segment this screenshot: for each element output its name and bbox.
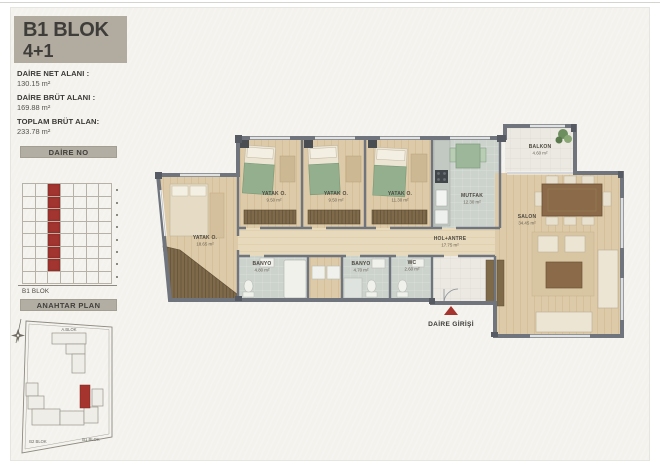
label-salon-name: SALON [518,214,537,220]
bath2-shower [344,278,362,298]
unit-cell [99,259,112,272]
label-wc-area: 2.60 m² [405,267,420,272]
compass-icon [11,319,25,343]
floor-dot [116,276,118,278]
master-bed [170,184,208,236]
stat-toplam-value: 233.78 m² [17,127,129,136]
stat-net-label: DAİRE NET ALANI : [17,69,129,78]
unit-cell-highlighted [48,184,61,197]
bed3-dresser [411,154,427,182]
top-divider [0,2,660,3]
bed3-nightstand [368,140,377,148]
label-master-name: YATAK O. [193,235,218,241]
label-banyo2-area: 4.70 m² [354,268,369,273]
unit-cell [87,222,100,235]
label-banyo1-name: BANYO [252,261,271,267]
unit-cell-highlighted [48,247,61,260]
entrance-arrow-icon [444,306,458,315]
unit-cell [36,184,49,197]
unit-cell [61,184,74,197]
unit-cell [74,184,87,197]
unit-cell [99,197,112,210]
grid-axis [18,285,117,286]
site-buildings [26,333,103,425]
master-rug [210,193,224,238]
unit-cell [74,222,87,235]
unit-cell [36,209,49,222]
unit-cell [36,234,49,247]
bed2-wardrobe [308,210,360,224]
site-highlight-building [80,385,90,408]
salon-armchair-1 [538,236,558,252]
label-hol-name: HOL+ANTRE [434,236,467,242]
stat-brut-label: DAİRE BRÜT ALANI : [17,93,129,102]
floor-dot [116,202,118,204]
bath2-sink [372,259,385,268]
salon-armchair-2 [565,236,585,252]
floor-dot [116,251,118,253]
entry-cabinet [486,260,494,302]
block-header: B1 BLOK 4+1 [14,16,127,63]
unit-cell [99,222,112,235]
floor-entry [432,256,495,303]
area-stats: DAİRE NET ALANI : 130.15 m² DAİRE BRÜT A… [17,69,129,141]
laundry-machine-1 [312,266,325,279]
kitchen-sink [436,190,447,206]
label-balkon-area: 4.60 m² [533,151,548,156]
unit-cell [74,272,87,285]
unit-cell [87,209,100,222]
unit-cell [23,234,36,247]
kitchen-fridge [435,210,448,224]
unit-cell [61,197,74,210]
unit-cell [99,272,112,285]
unit-cell [23,184,36,197]
unit-cell [23,222,36,235]
unit-cell [23,209,36,222]
label-bed2-area: 9.50 m² [329,198,344,203]
wc-toilet [397,280,408,297]
bed3-wardrobe [372,210,427,224]
label-mutfak-area: 12.30 m² [463,200,481,205]
stat-brut-value: 169.88 m² [17,103,129,112]
unit-cell [23,197,36,210]
unit-cell [61,234,74,247]
label-hol-area: 17.75 m² [441,243,459,248]
unit-cell [36,222,49,235]
salon-sofa-right [598,250,618,308]
block-title: B1 BLOK [23,20,127,41]
unit-cell [23,272,36,285]
unit-cell [23,259,36,272]
label-bed1-area: 9.50 m² [267,198,282,203]
unit-cell [87,197,100,210]
anahtar-plan-header: ANAHTAR PLAN [20,299,117,311]
unit-cell [74,234,87,247]
unit-cell [61,209,74,222]
unit-cell [36,272,49,285]
unit-cell [87,247,100,260]
label-banyo2-name: BANYO [351,261,370,267]
floor-dot [116,263,118,265]
unit-cell [74,247,87,260]
bed2 [308,145,340,195]
site-key-plan: A.BLOK B2 BLOK B1 BLOK [8,315,132,463]
unit-cell-highlighted [48,209,61,222]
unit-cell [61,272,74,285]
unit-cell [36,247,49,260]
unit-cell [23,247,36,260]
bed2-dresser [346,156,361,182]
floor-dot [116,189,118,191]
unit-cell [87,184,100,197]
site-label-b1blok: B1 BLOK [82,437,100,442]
label-master-area: 18.65 m² [196,242,214,247]
brochure-page: B1 BLOK 4+1 DAİRE NET ALANI : 130.15 m² … [0,0,660,468]
unit-cell [99,209,112,222]
stat-brut: DAİRE BRÜT ALANI : 169.88 m² [17,93,129,112]
unit-cell [99,234,112,247]
unit-cell-highlighted [48,222,61,235]
unit-cell [74,259,87,272]
bath2-toilet [366,280,377,297]
site-label-b2blok: B2 BLOK [29,439,47,444]
unit-cell-highlighted [48,234,61,247]
unit-cell [36,197,49,210]
label-mutfak-name: MUTFAK [461,193,483,199]
label-salon-area: 34.45 m² [518,221,536,226]
bath1-toilet [243,280,254,297]
unit-cell [74,197,87,210]
bath1-tub [284,260,306,298]
unit-cell [61,259,74,272]
label-bed3-name: YATAK O. [388,191,413,197]
unit-cell [61,222,74,235]
coffee-table [546,262,582,288]
entrance-label: DAİRE GİRİŞİ [428,320,474,328]
unit-cell [99,184,112,197]
stat-net: DAİRE NET ALANI : 130.15 m² [17,69,129,88]
unit-cell-highlighted [48,259,61,272]
grid-block-label: B1 BLOK [22,288,49,295]
laundry-machine-2 [327,266,340,279]
stat-toplam: TOPLAM BRÜT ALAN: 233.78 m² [17,117,129,136]
tv-console [497,260,504,306]
block-subtitle: 4+1 [23,41,127,61]
bed1 [242,145,275,195]
bed1-wardrobe [244,210,296,224]
daire-no-header: DAİRE NO [20,146,117,158]
floor-dot [116,239,118,241]
unit-cell [99,247,112,260]
stat-net-value: 130.15 m² [17,79,129,88]
unit-cell [87,272,100,285]
unit-cell-highlighted [48,197,61,210]
unit-cell [74,209,87,222]
bed2-nightstand [304,140,313,148]
floor-dot [116,214,118,216]
unit-cell [48,272,61,285]
label-balkon-name: BALKON [529,144,552,150]
label-bed1-name: YATAK O. [262,191,287,197]
kitchen-stove [435,170,448,183]
label-wc-name: WC [408,260,417,266]
label-bed2-name: YATAK O. [324,191,349,197]
bed3 [373,147,407,197]
bed1-dresser [280,156,295,182]
daire-no-grid [22,183,112,284]
floor-plan: YATAK O. 18.65 m² YATAK O. 9.50 m² YATAK… [150,98,630,348]
unit-cell [87,234,100,247]
unit-cell [87,259,100,272]
site-label-ablok: A.BLOK [61,327,76,332]
floor-dot [116,226,118,228]
floor-dots [116,184,118,283]
label-banyo1-area: 4.80 m² [255,268,270,273]
salon-sofa-bottom [536,312,592,332]
unit-cell [61,247,74,260]
label-bed3-area: 11.30 m² [391,198,409,203]
stat-toplam-label: TOPLAM BRÜT ALAN: [17,117,129,126]
unit-cell [36,259,49,272]
